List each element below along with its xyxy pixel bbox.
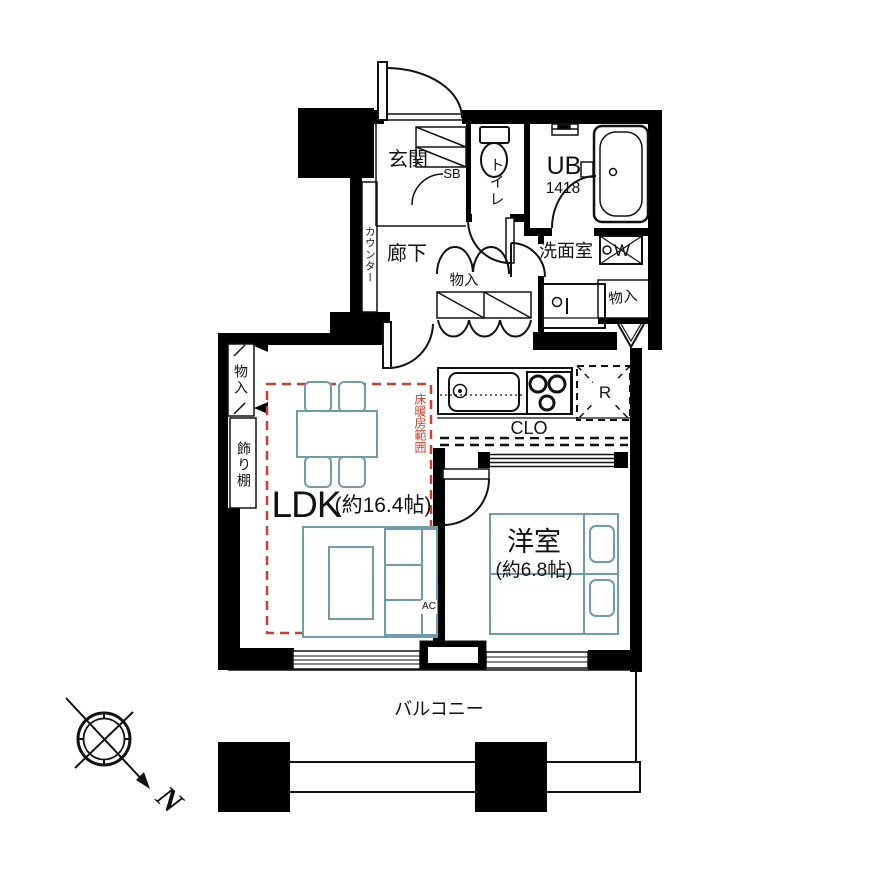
room-label-entrance: 玄関: [380, 147, 436, 173]
label-storage-hallway: 物入: [442, 272, 486, 290]
low-table: [329, 547, 373, 619]
sofa: [385, 529, 437, 635]
room-label-ldk: LDK: [276, 484, 336, 524]
label-unit-bath-size: 1418: [540, 181, 586, 197]
windows: [293, 641, 588, 669]
dining-table: [297, 411, 377, 457]
entrance-door-arc: [388, 68, 462, 118]
dining-chair: [305, 382, 331, 412]
vanity: [543, 284, 605, 328]
room-label-washroom: 洗面室: [534, 241, 598, 261]
bedroom-door-leaf: [443, 469, 489, 479]
label-washing-machine: W: [607, 239, 637, 261]
ldk-door-arc: [388, 324, 433, 368]
balcony-structure: [218, 670, 640, 812]
label-floor-heating-area: 床暖房範囲: [409, 386, 431, 460]
hall-storage-shelves: [437, 292, 531, 318]
label-ldk-size: (約16.4帖): [336, 492, 430, 518]
floor-plan-canvas: 玄関 SB トイレ UB 1418 洗面室 W 物入 廊下 カウンター 物入 物…: [0, 0, 877, 880]
bathtub: [581, 126, 648, 222]
bedroom-door-arc: [443, 479, 489, 525]
ldk-door-leaf: [383, 322, 391, 368]
label-closet: CLO: [507, 419, 551, 437]
dining-chair: [339, 457, 365, 487]
bedroom-slider: [490, 455, 614, 467]
label-display-shelf: 飾り棚: [232, 424, 256, 506]
entrance-door-leaf: [378, 62, 387, 120]
room-label-balcony: バルコニー: [392, 698, 486, 720]
floor-plan-drawing: [0, 0, 877, 880]
room-label-unit-bath: UB: [546, 152, 582, 180]
label-air-conditioner: AC: [421, 600, 437, 614]
label-storage-ldk: 物入: [229, 352, 253, 408]
balcony-pillar: [218, 742, 290, 812]
dining-chair: [305, 457, 331, 487]
label-bedroom-size: (約6.8帖): [490, 559, 578, 581]
room-label-hallway: 廊下: [382, 242, 432, 266]
label-shoe-box: SB: [438, 165, 466, 181]
pillow: [590, 580, 614, 616]
compass: [66, 698, 150, 789]
bath-faucet: [552, 124, 578, 135]
dining-chair: [339, 382, 365, 412]
pillow: [590, 526, 614, 562]
label-counter: カウンター: [361, 196, 378, 314]
kitchen-counter: [438, 368, 572, 414]
room-label-bedroom: 洋室: [502, 526, 566, 558]
label-refrigerator: R: [593, 381, 617, 403]
room-label-toilet: トイレ: [485, 150, 507, 214]
balcony-pillar: [475, 742, 547, 812]
